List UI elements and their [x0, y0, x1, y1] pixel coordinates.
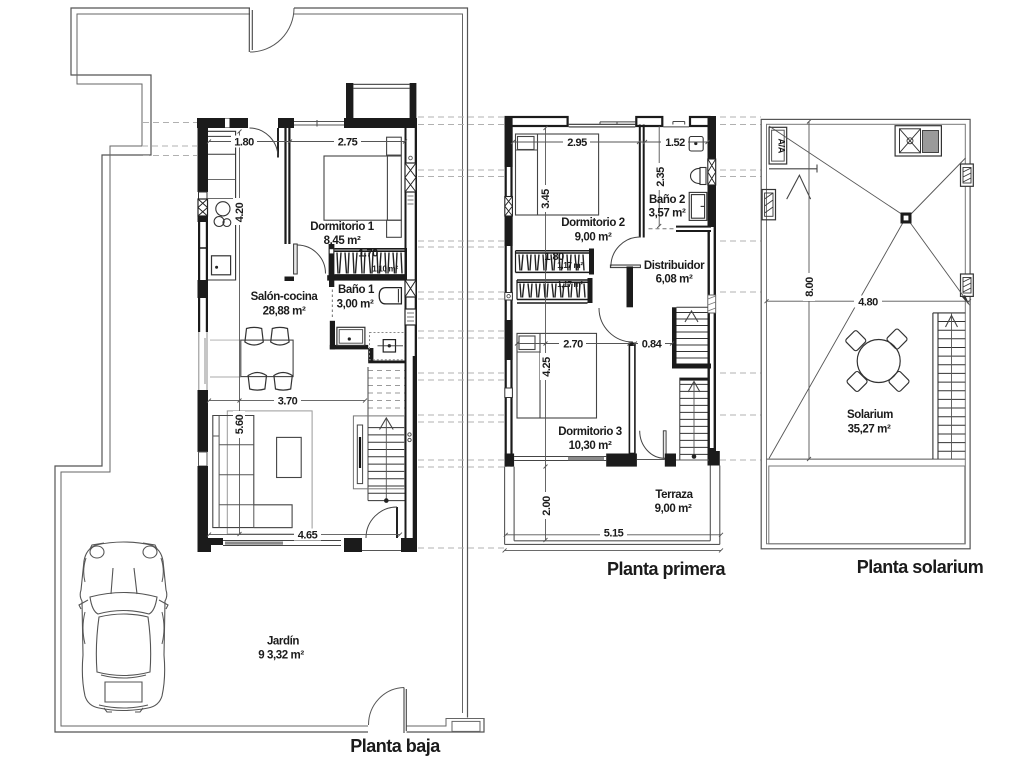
svg-text:5.60: 5.60: [234, 414, 246, 434]
svg-text:4.65: 4.65: [298, 530, 318, 542]
svg-text:Baño 1: Baño 1: [338, 284, 375, 296]
svg-text:Distribuidor: Distribuidor: [644, 260, 705, 272]
svg-text:9,00 m²: 9,00 m²: [655, 503, 692, 515]
svg-text:0.84: 0.84: [642, 339, 663, 351]
svg-text:8.00: 8.00: [804, 277, 816, 297]
svg-text:2.95: 2.95: [567, 137, 587, 149]
svg-text:Jardín: Jardín: [267, 636, 299, 648]
svg-text:1.70: 1.70: [358, 248, 378, 260]
svg-text:4.20: 4.20: [234, 202, 246, 222]
svg-text:10,30 m²: 10,30 m²: [569, 440, 612, 452]
svg-text:1,17 m²: 1,17 m²: [557, 280, 583, 289]
svg-text:4.25: 4.25: [541, 357, 553, 377]
svg-text:3,00 m²: 3,00 m²: [337, 299, 374, 311]
svg-text:3.45: 3.45: [540, 189, 552, 209]
svg-text:4.80: 4.80: [858, 297, 878, 309]
svg-text:3.70: 3.70: [278, 396, 298, 408]
svg-text:2.00: 2.00: [541, 496, 553, 516]
svg-text:Dormitorio 3: Dormitorio 3: [558, 426, 622, 438]
svg-text:2.70: 2.70: [563, 339, 583, 351]
svg-text:35,27 m²: 35,27 m²: [848, 424, 891, 436]
svg-text:6,08 m²: 6,08 m²: [656, 274, 693, 286]
svg-text:1.52: 1.52: [665, 137, 685, 149]
svg-text:Baño 2: Baño 2: [649, 194, 685, 206]
svg-text:1,10 m²: 1,10 m²: [372, 265, 398, 274]
svg-text:Planta baja: Planta baja: [350, 736, 441, 756]
svg-text:Terraza: Terraza: [655, 489, 693, 501]
svg-text:Planta primera: Planta primera: [607, 559, 727, 579]
svg-text:1,17 m²: 1,17 m²: [557, 261, 583, 270]
svg-text:28,88 m²: 28,88 m²: [263, 306, 306, 318]
svg-text:5.15: 5.15: [604, 528, 624, 540]
svg-text:Dormitorio 2: Dormitorio 2: [561, 217, 625, 229]
svg-text:Salón-cocina: Salón-cocina: [251, 291, 319, 303]
svg-text:9 3,32 m²: 9 3,32 m²: [258, 650, 304, 662]
svg-text:Dormitorio 1: Dormitorio 1: [310, 221, 375, 233]
svg-text:Solarium: Solarium: [847, 409, 893, 421]
svg-text:9,00 m²: 9,00 m²: [575, 232, 612, 244]
svg-text:1.80: 1.80: [234, 137, 254, 149]
svg-text:Planta solarium: Planta solarium: [857, 557, 984, 577]
svg-text:3,57 m²: 3,57 m²: [649, 208, 686, 220]
svg-text:2.35: 2.35: [655, 167, 667, 187]
svg-text:2.75: 2.75: [338, 137, 358, 149]
svg-text:A/A: A/A: [777, 138, 787, 153]
svg-text:8,45 m²: 8,45 m²: [324, 235, 361, 247]
